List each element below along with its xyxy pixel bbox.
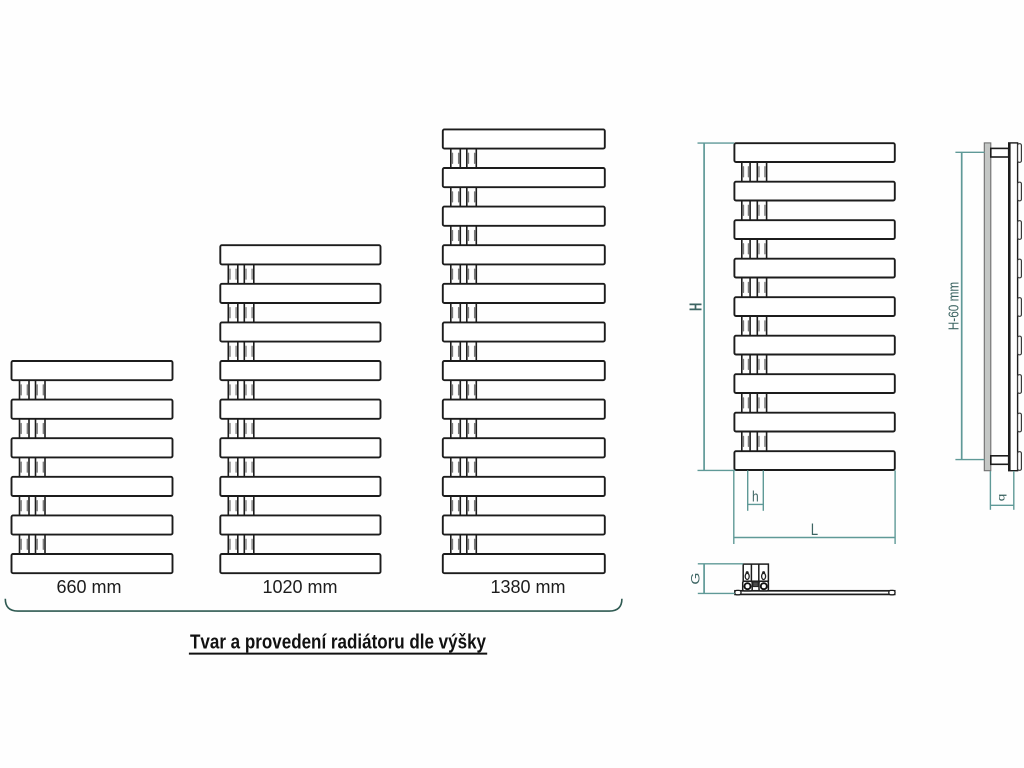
svg-text:G: G <box>689 573 702 585</box>
svg-text:h: h <box>752 488 759 505</box>
svg-text:1380 mm: 1380 mm <box>490 577 565 597</box>
svg-text:H-60 mm: H-60 mm <box>946 282 962 331</box>
svg-text:L: L <box>811 520 818 539</box>
svg-text:q: q <box>995 494 1007 502</box>
svg-text:Tvar a provedení radiátoru dle: Tvar a provedení radiátoru dle výšky <box>190 631 486 654</box>
svg-text:1020 mm: 1020 mm <box>262 577 337 597</box>
svg-text:660 mm: 660 mm <box>56 577 121 597</box>
